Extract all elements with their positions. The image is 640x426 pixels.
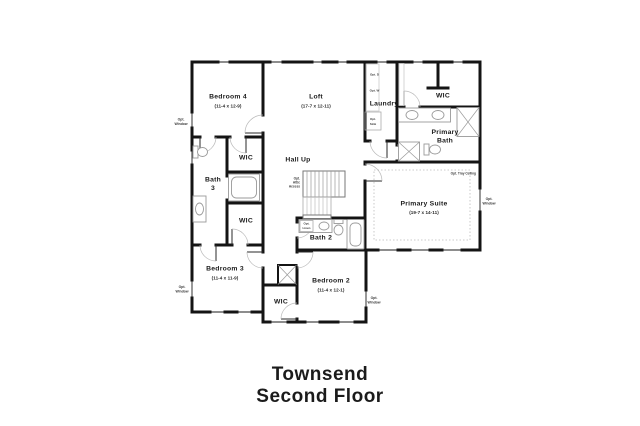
- annotation-opt-tray-ceiling: Opt. Tray Ceiling: [451, 172, 476, 176]
- room-label-primary-suite: Primary Suite: [400, 201, 447, 208]
- room-label-primary-bath-2: Bath: [437, 138, 453, 145]
- room-label-bath3-2: 3: [211, 185, 215, 192]
- bath2-tub-inner: [350, 223, 361, 246]
- room-label-bedroom-3: Bedroom 3: [206, 266, 244, 273]
- primary-bath-toilet-bowl: [430, 145, 441, 154]
- room-label-bedroom-2: Bedroom 2: [312, 278, 350, 285]
- annotation-opt-window-bedroom4: Window: [175, 122, 188, 126]
- room-dims-bedroom-3: (11-4 x 11-9): [212, 276, 239, 281]
- annotation-attic-access: Access: [289, 185, 300, 189]
- bath2-toilet-tank: [334, 220, 343, 224]
- room-dims-bedroom-4: (11-4 x 12-9): [215, 104, 242, 109]
- floor-plan-svg: Bedroom 4 (11-4 x 12-9) Loft (17-7 x 12-…: [0, 0, 640, 426]
- room-label-bedroom3-wic: WIC: [239, 218, 253, 225]
- bath2-toilet-bowl: [334, 225, 343, 235]
- annotation-opt-window-primary-suite: Window: [483, 202, 496, 206]
- room-label-bedroom2-wic: WIC: [274, 299, 288, 306]
- annotation-opt-sink: Sink: [370, 122, 377, 126]
- room-dims-bedroom-2: (11-4 x 12-1): [318, 288, 345, 293]
- room-label-bedroom4-wic: WIC: [239, 155, 253, 162]
- plan-title-line-2: Second Floor: [256, 386, 384, 407]
- annotation-opt-window-bedroom2: Opt.: [371, 296, 378, 300]
- annotation-opt-window-bedroom3: Window: [176, 290, 189, 294]
- stair-railing: [303, 215, 331, 219]
- plan-title: Townsend Second Floor: [256, 364, 384, 407]
- room-label-bath3-1: Bath: [205, 177, 221, 184]
- annotation-opt-window-bedroom4: Opt.: [178, 118, 185, 122]
- door-swing-arcs: [200, 91, 420, 319]
- annotation-opt-washer: Opt. W: [370, 89, 380, 93]
- room-label-primary-bath-1: Primary: [431, 129, 458, 136]
- primary-bath-sink-2: [432, 111, 444, 120]
- room-dims-loft: (17-7 x 12-11): [301, 104, 331, 109]
- annotation-opt-dryer: Opt. D: [370, 73, 380, 77]
- primary-wic-shelf: [399, 64, 404, 106]
- room-label-primary-wic: WIC: [436, 93, 450, 100]
- primary-bath-toilet-tank: [424, 144, 429, 155]
- room-label-hall-up: Hall Up: [285, 157, 310, 164]
- annotation-opt-window-bedroom3: Opt.: [179, 285, 186, 289]
- annotation-opt-window-bedroom2: Window: [368, 301, 381, 305]
- primary-bath-sink-1: [406, 111, 418, 120]
- staircase: [303, 171, 345, 219]
- room-label-bedroom-4: Bedroom 4: [209, 94, 247, 101]
- annotation-opt-linen: Opt.: [304, 222, 310, 226]
- room-dims-primary-suite: (19-7 x 14-11): [409, 210, 439, 215]
- plan-title-line-1: Townsend: [272, 364, 369, 385]
- bath3-tub-inner: [232, 177, 257, 198]
- annotation-opt-linen: Linen: [303, 226, 311, 230]
- stair-treads-upper: [307, 171, 339, 197]
- bath3-toilet-bowl: [198, 148, 208, 157]
- annotation-opt-window-primary-suite: Opt.: [486, 197, 493, 201]
- bath2-sink: [319, 222, 329, 230]
- laundry-sink-box: [365, 112, 381, 130]
- bath3-sink: [196, 203, 204, 215]
- room-label-bath-2: Bath 2: [310, 235, 332, 242]
- room-label-loft: Loft: [309, 94, 323, 101]
- stair-treads-lower: [307, 197, 327, 215]
- room-label-laundry: Laundry: [370, 101, 399, 108]
- annotation-opt-sink: Opt.: [370, 117, 376, 121]
- floor-plan-page: Bedroom 4 (11-4 x 12-9) Loft (17-7 x 12-…: [0, 0, 640, 426]
